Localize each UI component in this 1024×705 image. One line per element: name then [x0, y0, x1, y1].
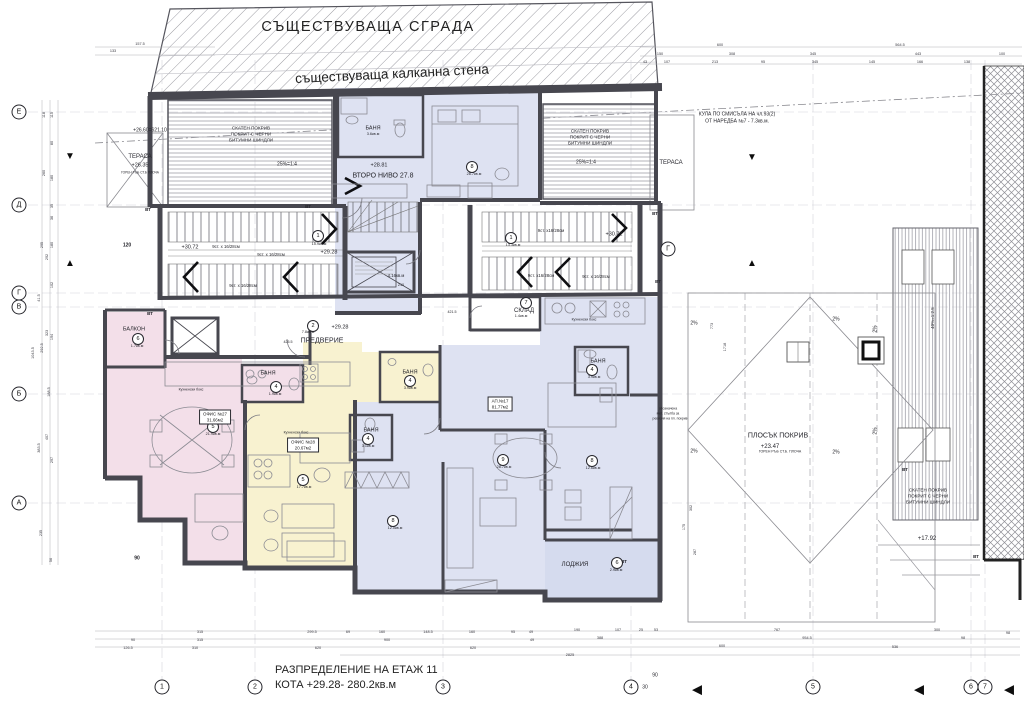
dimension: 620: [470, 647, 476, 651]
dimension: 190: [574, 629, 580, 633]
annotation: 25%=1:4: [277, 163, 297, 168]
dimension: 95: [511, 631, 515, 635]
annotation: КУЛА ПО СМИСЪЛА НА чл.93(2): [699, 113, 776, 118]
annotation: СКАТЕН ПОКРИВ: [909, 489, 947, 494]
dimension: 292.5: [41, 343, 45, 353]
dimension: 620: [315, 647, 321, 651]
direction-marker: ▼: [65, 152, 75, 162]
annotation: +30.72: [606, 232, 623, 238]
dimension: 1718: [724, 343, 728, 351]
dimension: 150: [657, 53, 663, 57]
dimension: 148.5: [423, 631, 433, 635]
room-area: 3.9кв.м: [588, 376, 601, 380]
dimension: 95: [761, 61, 765, 65]
annotation: 40%=1:2.5: [931, 307, 936, 329]
annotation: 2%: [832, 318, 839, 323]
dimension: 90: [131, 639, 135, 643]
annotation: +28.81: [371, 163, 388, 169]
axis-bubble-Д: Д: [12, 198, 27, 213]
annotation: ревизия на пл. покрив: [653, 417, 688, 420]
annotation: ВТ: [145, 208, 151, 213]
annotation: БИТУМНИ ШИНДЛИ: [229, 139, 273, 144]
annotation: 2%: [690, 450, 697, 455]
annotation: +17.92: [918, 536, 937, 542]
annotation: ПОКРИТ С ЧЕРНИ: [908, 495, 948, 500]
dimension: 295: [41, 242, 45, 248]
dimension: 118: [43, 112, 47, 118]
dimension: 345: [810, 53, 816, 57]
annotation: 210: [398, 284, 404, 288]
annotation: БАНЯ: [365, 126, 380, 132]
annotation: +26.60=621.10: [133, 129, 167, 134]
dimension: 310: [192, 647, 198, 651]
annotation: СКАТЕН ПОКРИВ: [571, 130, 609, 135]
dimension: 767: [774, 629, 780, 633]
dimension: 383.5: [38, 443, 42, 453]
dimension: 69: [346, 631, 350, 635]
annotation: 2%: [874, 427, 879, 434]
axis-bubble-6: 6: [964, 680, 979, 695]
annotation: ВТ: [655, 280, 661, 285]
annotation: 120: [123, 244, 131, 249]
existing-building-label: СЪЩЕСТВУВАЩА СГРАДА: [261, 20, 474, 35]
annotation: 425.5: [284, 341, 293, 345]
annotation: +26.35: [132, 163, 149, 169]
floor-plan-sheet: СЪЩЕСТВУВАЩА СГРАДА съществуваща калканн…: [0, 0, 1024, 705]
axis-bubble-В: В: [12, 300, 27, 315]
axis-bubble-2: 2: [248, 680, 263, 695]
annotation: 421.5: [448, 311, 457, 315]
dimension: 300: [934, 629, 940, 633]
annotation: 4.16кв.м: [388, 274, 405, 278]
axis-bubble-Г: Г: [12, 286, 27, 301]
dimension: 600: [719, 645, 725, 649]
direction-marker: ▲: [747, 259, 757, 269]
room-area: 15.9кв.м: [312, 243, 327, 247]
room-area: 12.6кв.м: [586, 467, 601, 471]
dimension: 315: [197, 631, 203, 635]
dimension: 36: [51, 216, 55, 220]
axis-bubble-Г: Г: [661, 242, 676, 257]
dimension: 564.5: [895, 44, 905, 48]
dimension: 160: [469, 631, 475, 635]
annotation: Кухненски бокс: [572, 318, 597, 322]
axis-bubble-4: 4: [624, 680, 639, 695]
room-area: 28.7кв.м: [467, 173, 482, 177]
dimension: 292: [46, 254, 50, 260]
annotation: БАЛКОН: [123, 327, 145, 333]
annotation: ЛОДЖИЯ: [562, 562, 589, 568]
dimension: 297: [51, 457, 55, 463]
dimension: 49: [529, 631, 533, 635]
unit-area: 81.77м2: [492, 404, 509, 410]
room-number-badge: 1: [312, 230, 324, 242]
annotation: БИТУМНИ ШИНДЛИ: [568, 142, 612, 147]
unit-label: ОФИС №2820.67м2: [287, 438, 319, 453]
unit-label: ОФИС №2731.66м2: [199, 410, 231, 425]
dimension: 308: [729, 53, 735, 57]
dimension: 56: [50, 558, 54, 562]
dimension: 35: [51, 204, 55, 208]
dimension: 175: [683, 524, 687, 530]
direction-marker: ▲: [65, 259, 75, 269]
party-wall-label: съществуваща калканна стена: [295, 63, 489, 86]
drawing-elevation-subtitle: КОТА +29.28- 280.2кв.м: [275, 680, 396, 691]
dimension: 80: [51, 141, 55, 145]
dimension: 49: [530, 639, 534, 643]
dimension: 166: [917, 61, 923, 65]
room-area: 1.7кв.м: [131, 345, 144, 349]
dimension: 345: [812, 61, 818, 65]
direction-marker: ◀: [1004, 683, 1014, 696]
annotation: 9ст. х 16/28см: [257, 253, 285, 257]
dimension: 1043.5: [32, 347, 36, 359]
axis-bubble-7: 7: [978, 680, 993, 695]
annotation: 2%: [690, 322, 697, 327]
direction-marker: ◀: [914, 683, 924, 696]
dimension: 180: [51, 242, 55, 248]
unit-name: ОФИС №28: [291, 440, 315, 446]
dimension: 388: [597, 637, 603, 641]
dimension: 180: [51, 175, 55, 181]
axis-bubble-5: 5: [806, 680, 821, 695]
dimension: 600: [717, 44, 723, 48]
annotation: ВТ: [147, 312, 153, 317]
annotation: 9ст. х 16/28см: [229, 284, 257, 288]
room-area: 21.9кв.м: [206, 433, 221, 437]
annotation: 2%: [874, 325, 879, 332]
axis-bubble-1: 1: [155, 680, 170, 695]
dimension: 260: [43, 170, 47, 176]
dimension: 133: [110, 50, 116, 54]
annotation: обозначена: [659, 407, 677, 410]
room-area: 12.0кв.м: [388, 527, 403, 531]
dimension: 900: [384, 639, 390, 643]
dimension: 98: [961, 637, 965, 641]
annotation: ГОРЕН РЪБ СТ.Б. ПЛОЧА: [759, 450, 801, 454]
annotation: Кухненски бокс: [179, 388, 204, 392]
dimension: 100: [999, 53, 1005, 57]
dimension: 773: [711, 323, 715, 329]
dimension: 2825: [566, 654, 574, 658]
dimension: 107: [664, 61, 670, 65]
room-area: 2.9кв.м: [610, 569, 623, 573]
room-area: 13.3кв.м: [506, 244, 521, 248]
direction-marker: ◀: [692, 683, 702, 696]
dimension: 213: [712, 61, 718, 65]
annotation: ТЕРАСА: [659, 160, 682, 166]
unit-name: АП.№17: [492, 399, 509, 405]
axis-bubble-Б: Б: [12, 387, 27, 402]
room-area: 3.9кв.м: [404, 387, 417, 391]
direction-marker: ▼: [747, 153, 757, 163]
dimension: 407: [46, 434, 50, 440]
annotation: 90: [652, 674, 658, 679]
label-layer: СЪЩЕСТВУВАЩА СГРАДА съществуваща калканн…: [0, 0, 1024, 705]
dimension: 157.5: [135, 43, 145, 47]
room-area: 7.8кв.м: [302, 331, 315, 335]
annotation: СКАТЕН ПОКРИВ: [232, 127, 270, 132]
unit-area: 20.67м2: [291, 445, 315, 451]
dimension: 43: [643, 61, 647, 65]
annotation: 1.4кв.м: [515, 315, 528, 319]
axis-bubble-3: 3: [436, 680, 451, 695]
annotation: 90: [134, 557, 140, 562]
annotation: ТЕРАСА: [128, 154, 151, 160]
dimension: 25: [639, 629, 643, 633]
dimension: 302: [690, 505, 694, 511]
annotation: 25%=1:4: [576, 161, 596, 166]
dimension: 299.5: [307, 631, 317, 635]
unit-name: ОФИС №27: [203, 412, 227, 418]
unit-label: АП.№1781.77м2: [488, 397, 513, 412]
dimension: 138: [964, 61, 970, 65]
annotation: ВТ: [902, 468, 908, 473]
annotation: Кухненски бокс: [284, 431, 309, 435]
drawing-title: РАЗПРЕДЕЛЕНИЕ НА ЕТАЖ 11: [275, 665, 438, 676]
annotation: 30: [642, 686, 648, 691]
annotation: ВТ: [973, 555, 979, 560]
dimension: 315: [197, 639, 203, 643]
annotation: +30.72: [182, 245, 199, 251]
dimension: 443: [915, 53, 921, 57]
annotation: 9ст. х16/28см: [538, 229, 564, 233]
annotation: 2%: [832, 451, 839, 456]
annotation: 9ст. х 16/28см: [582, 275, 610, 279]
room-area: 17.7кв.м: [297, 486, 312, 490]
annotation: +29.28: [332, 325, 349, 331]
room-area: 1.9кв.м: [269, 393, 282, 397]
dimension: 107: [615, 629, 621, 633]
annotation: ГОРЕН РЪБ СТ.Б ПЛОЧА: [121, 171, 159, 174]
dimension: 194: [51, 334, 55, 340]
dimension: 98: [1006, 632, 1010, 636]
annotation: 9ст. х 16/28см: [212, 245, 240, 249]
room-area: 3.1кв.м: [362, 445, 375, 449]
dimension: 235: [40, 530, 44, 536]
unit-area: 31.66м2: [203, 417, 227, 423]
dimension: 126.5: [123, 647, 133, 651]
annotation: 3.6кв.м: [367, 133, 380, 137]
axis-bubble-Е: Е: [12, 105, 27, 120]
dimension: 145: [869, 61, 875, 65]
annotation: БИТУМНИ ШИНДЛИ: [906, 501, 950, 506]
annotation: ВТ: [652, 212, 658, 217]
annotation: ПОКРИТ С ЧЕРНИ: [570, 136, 610, 141]
dimension: 41.5: [38, 294, 42, 301]
annotation: ВТ: [305, 205, 311, 210]
room-area: 28.7кв.м: [497, 466, 512, 470]
dimension: 102: [51, 282, 55, 288]
annotation: мет. стълба за: [657, 412, 680, 415]
dimension: 536: [892, 646, 898, 650]
annotation: БАНЯ: [260, 371, 275, 377]
dimension: 188.5: [48, 387, 52, 397]
dimension: 160: [379, 631, 385, 635]
dimension: 115: [51, 112, 55, 118]
annotation: ВТОРО НИВО 27.8: [352, 173, 413, 180]
dimension: 954.5: [802, 637, 812, 641]
annotation: 9ст. х16/28см: [528, 274, 554, 278]
annotation: ПРЕДВЕРИЕ: [301, 338, 344, 345]
annotation: ОТ НАРЕДБА №7 - 7.3кв.м.: [705, 120, 769, 125]
dimension: 53: [654, 629, 658, 633]
annotation: ПЛОСЪК ПОКРИВ: [748, 433, 808, 440]
dimension: 287: [694, 549, 698, 555]
annotation: ПОКРИТ С ЧЕРНИ: [231, 133, 271, 138]
annotation: +29.28: [321, 250, 338, 256]
axis-bubble-А: А: [12, 496, 27, 511]
room-number-badge: 7: [520, 297, 532, 309]
